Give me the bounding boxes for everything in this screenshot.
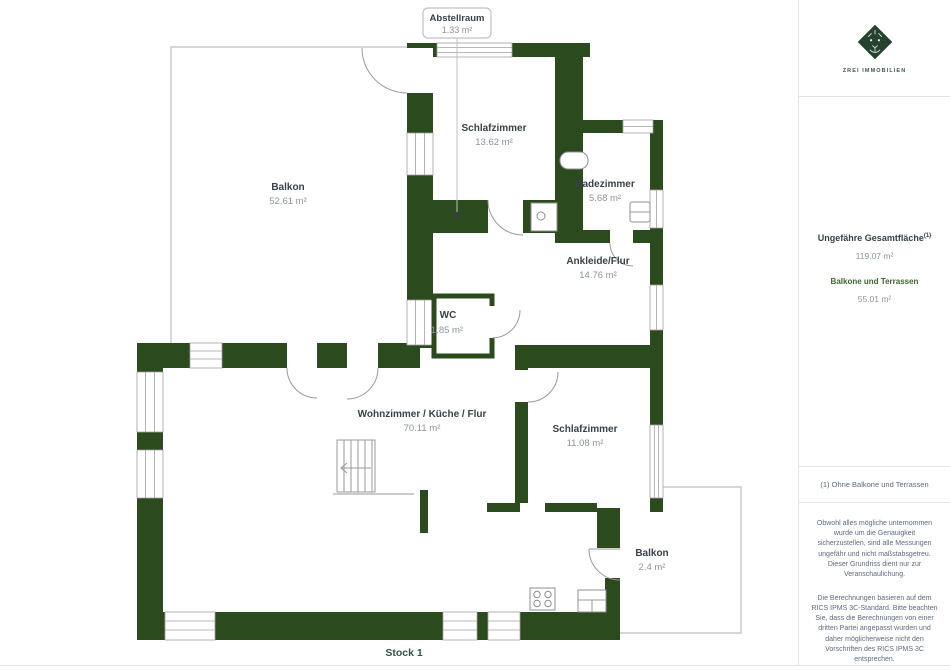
room-label-schlafzimmer-1: Schlafzimmer: [461, 123, 526, 134]
bottom-divider: [0, 665, 950, 666]
kitchen-sink-icon: [578, 590, 606, 612]
disclaimers: Obwohl alles mögliche unternommen wurde …: [799, 503, 950, 665]
toilet-icon: [531, 203, 557, 231]
room-label-balkon-2: Balkon: [635, 548, 668, 559]
room-label-wohnzimmer: Wohnzimmer / Küche / Flur: [358, 409, 487, 420]
callout-room-name: Abstellraum: [430, 13, 485, 24]
room-area-schlafzimmer-2: 11.08 m²: [567, 438, 604, 449]
stairs-icon: [333, 440, 414, 494]
floor-label: Stock 1: [385, 647, 423, 659]
area-footnote: (1) Ohne Balkone und Terrassen: [799, 466, 950, 503]
room-area-ankleide: 14.76 m²: [579, 270, 617, 281]
room-label-ankleide: Ankleide/Flur: [566, 256, 629, 267]
room-area-wc: 1.85 m²: [431, 325, 463, 336]
balcony-area-label: Balkone und Terrassen: [799, 277, 950, 286]
fixtures: [530, 152, 650, 612]
room-area-badezimmer: 5.68 m²: [589, 193, 621, 204]
room-area-balkon-2: 2.4 m²: [639, 562, 666, 573]
company-logo: ZREI IMMOBILIEN: [799, 0, 950, 97]
total-area-footnote-marker: (1): [924, 233, 931, 239]
abstellraum-callout: Abstellraum 1.33 m²: [423, 8, 491, 218]
floor-plan: Abstellraum 1.33 m² Balkon 52.61 m² Schl…: [0, 0, 798, 671]
disclaimer-standard: Die Berechnungen basieren auf dem RICS I…: [810, 594, 939, 665]
bath-sink-icon: [630, 202, 650, 222]
callout-room-area: 1.33 m²: [442, 25, 473, 35]
disclaimer-accuracy: Obwohl alles mögliche unternommen wurde …: [810, 519, 939, 580]
sidebar-spacer: [799, 304, 950, 466]
kitchen-stove-icon: [530, 588, 555, 610]
info-sidebar: ZREI IMMOBILIEN Ungefähre Gesamtfläche(1…: [798, 0, 950, 665]
walls: [137, 43, 663, 640]
room-label-wc: WC: [440, 310, 457, 321]
room-label-badezimmer: Badezimmer: [575, 179, 635, 190]
room-label-schlafzimmer-2: Schlafzimmer: [552, 424, 617, 435]
balcony-area-value: 55.01 m²: [799, 294, 950, 304]
logo-company-name: ZREI IMMOBILIEN: [843, 68, 907, 74]
floorplan-page: Abstellraum 1.33 m² Balkon 52.61 m² Schl…: [0, 0, 950, 671]
room-area-schlafzimmer-1: 13.62 m²: [475, 137, 513, 148]
logo-lion-icon: [856, 23, 894, 61]
room-area-wohnzimmer: 70.11 m²: [404, 423, 441, 434]
bath-door-icon: [560, 152, 588, 169]
total-area-value: 119.07 m²: [799, 251, 950, 261]
area-summary: Ungefähre Gesamtfläche(1) 119.07 m² Balk…: [799, 97, 950, 304]
total-area-label-text: Ungefähre Gesamtfläche: [818, 233, 924, 243]
room-area-balkon-1: 52.61 m²: [269, 196, 307, 207]
total-area-label: Ungefähre Gesamtfläche(1): [799, 233, 950, 243]
room-label-balkon-1: Balkon: [271, 182, 304, 193]
